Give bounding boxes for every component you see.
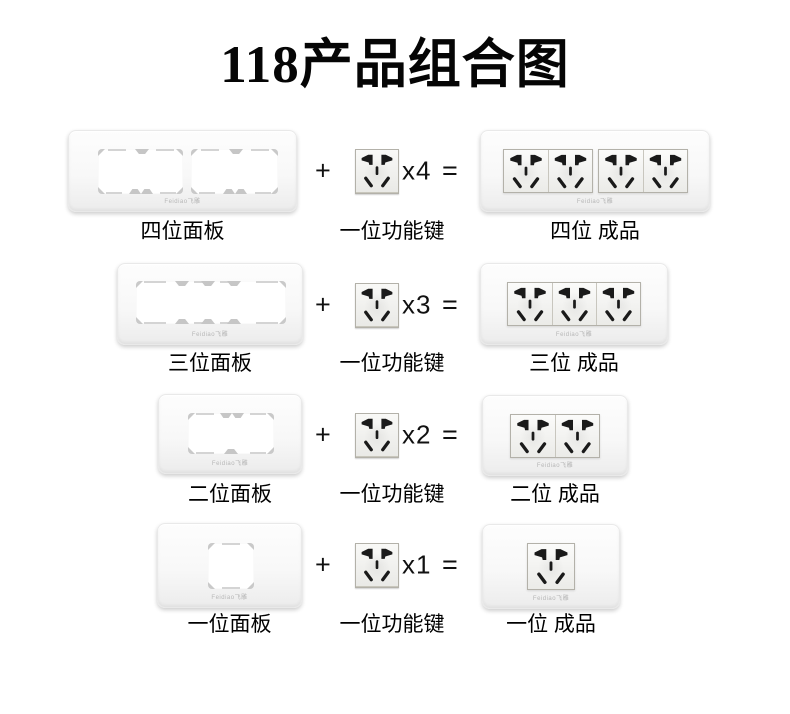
socket-five-hole-icon xyxy=(644,150,687,192)
cutout-mark xyxy=(199,192,215,194)
cutout-mark xyxy=(176,149,183,156)
cutout-mark xyxy=(208,582,215,589)
cutout-mark xyxy=(227,281,241,286)
multiplier-label: x1 xyxy=(402,549,431,580)
brand-mark: Feidiao飞雕 xyxy=(481,199,709,205)
cutout-mark xyxy=(222,587,240,589)
socket-five-hole-icon xyxy=(556,415,599,457)
multiplier-label: x2 xyxy=(402,419,431,450)
multiplier-label: x3 xyxy=(402,289,431,320)
cutout-mark xyxy=(227,319,241,324)
socket-face xyxy=(528,544,574,589)
socket-face xyxy=(511,415,555,457)
one-gang-socket-module-image xyxy=(355,413,399,458)
combiner-row: + x1 = xyxy=(305,543,473,588)
module-cutout xyxy=(188,413,274,454)
frame-panel-caption: 三位面板 xyxy=(117,351,303,377)
cutout-mark xyxy=(223,189,235,194)
module-caption: 一位功能键 xyxy=(302,482,482,508)
socket-group xyxy=(527,543,575,590)
cutout-mark xyxy=(220,413,232,418)
cutout-mark xyxy=(256,281,278,283)
page-title: 118产品组合图 xyxy=(0,22,790,98)
module-cutout xyxy=(208,543,254,589)
product-caption: 三位 成品 xyxy=(480,351,668,377)
four-gang-finished-product-image: Feidiao飞雕 xyxy=(480,130,710,212)
equals-operator: = xyxy=(442,289,458,320)
two-gang-finished-product-image: Feidiao飞雕 xyxy=(482,395,628,476)
cutout-mark xyxy=(98,149,105,156)
socket-group xyxy=(503,149,593,193)
three-gang-finished-product-image: Feidiao飞雕 xyxy=(480,263,668,345)
cutout-mark xyxy=(255,192,271,194)
cutout-mark xyxy=(144,322,166,324)
combiner-row: + x3 = xyxy=(305,283,473,328)
module-caption: 一位功能键 xyxy=(302,612,482,638)
product-caption: 二位 成品 xyxy=(482,482,628,508)
socket-five-hole-icon xyxy=(356,544,398,587)
frame-panel-caption: 二位面板 xyxy=(158,482,302,508)
cutout-mark xyxy=(250,413,266,415)
socket-five-hole-icon xyxy=(511,415,555,457)
socket-five-hole-icon xyxy=(356,414,398,457)
cutout-mark xyxy=(136,317,143,324)
cutout-mark xyxy=(271,187,278,194)
cutout-mark xyxy=(108,149,126,151)
cutout-mark xyxy=(188,447,195,454)
brand-mark: Feidiao飞雕 xyxy=(159,461,301,467)
cutout-mark xyxy=(247,582,254,589)
cutout-mark xyxy=(141,189,153,194)
socket-face xyxy=(504,150,548,192)
multiplier-label: x4 xyxy=(402,155,431,186)
cutout-mark xyxy=(208,543,215,550)
plus-operator: + xyxy=(315,549,331,580)
cutout-mark xyxy=(188,413,195,420)
frame-panel-caption: 四位面板 xyxy=(68,219,297,245)
cutout-mark xyxy=(135,149,149,154)
cutout-mark xyxy=(191,149,198,156)
cutout-mark xyxy=(196,452,214,454)
cutout-mark xyxy=(175,319,189,324)
socket-five-hole-icon xyxy=(553,283,596,325)
one-gang-finished-product-image: Feidiao飞雕 xyxy=(482,524,620,609)
equals-operator: = xyxy=(442,549,458,580)
cutout-mark xyxy=(196,413,214,415)
cutout-mark xyxy=(267,447,274,454)
one-gang-socket-module-image xyxy=(355,543,399,588)
cutout-mark xyxy=(160,192,176,194)
cutout-mark xyxy=(251,149,269,151)
cutout-mark xyxy=(201,281,215,286)
cutout-mark xyxy=(250,452,266,454)
product-caption: 一位 成品 xyxy=(482,612,620,638)
cutout-mark xyxy=(224,449,238,454)
cutout-mark xyxy=(175,281,189,286)
cutout-mark xyxy=(267,413,274,420)
module-caption: 一位功能键 xyxy=(302,351,482,377)
socket-face xyxy=(552,283,596,325)
socket-face xyxy=(643,150,687,192)
module-cutout xyxy=(98,149,183,194)
frame-panel-caption: 一位面板 xyxy=(157,612,302,638)
one-gang-socket-module-image xyxy=(355,149,399,194)
plus-operator: + xyxy=(315,289,331,320)
combiner-row: + x2 = xyxy=(305,413,473,458)
module-cutout xyxy=(136,281,286,324)
socket-five-hole-icon xyxy=(597,283,640,325)
cutout-mark xyxy=(232,413,244,418)
cutout-mark xyxy=(247,543,254,550)
brand-mark: Feidiao飞雕 xyxy=(118,332,302,338)
socket-five-hole-icon xyxy=(504,150,548,192)
socket-face xyxy=(548,150,592,192)
cutout-mark xyxy=(156,149,174,151)
socket-five-hole-icon xyxy=(528,544,574,589)
socket-group xyxy=(507,282,641,326)
socket-group xyxy=(598,149,688,193)
equals-operator: = xyxy=(442,155,458,186)
cutout-mark xyxy=(136,281,143,288)
socket-face xyxy=(508,283,552,325)
cutout-mark xyxy=(222,543,240,545)
cutout-mark xyxy=(106,192,122,194)
product-caption: 四位 成品 xyxy=(480,219,710,245)
three-gang-frame-panel-image: Feidiao飞雕 xyxy=(117,263,303,345)
cutout-mark xyxy=(229,149,243,154)
cutout-mark xyxy=(129,189,141,194)
cutout-mark xyxy=(256,322,278,324)
cutout-mark xyxy=(279,317,286,324)
brand-mark: Feidiao飞雕 xyxy=(158,595,301,601)
cutout-mark xyxy=(279,281,286,288)
socket-face xyxy=(599,150,643,192)
brand-mark: Feidiao飞雕 xyxy=(483,596,619,602)
brand-mark: Feidiao飞雕 xyxy=(69,199,296,205)
combo-diagram: 118产品组合图 Feidiao飞雕 + x4 xyxy=(0,0,790,714)
combiner-row: + x4 = xyxy=(305,149,473,194)
cutout-mark xyxy=(201,319,215,324)
cutout-mark xyxy=(235,189,247,194)
socket-five-hole-icon xyxy=(599,150,643,192)
module-caption: 一位功能键 xyxy=(302,219,482,245)
socket-five-hole-icon xyxy=(549,150,592,192)
plus-operator: + xyxy=(315,419,331,450)
four-gang-frame-panel-image: Feidiao飞雕 xyxy=(68,130,297,212)
cutout-mark xyxy=(144,281,166,283)
equals-operator: = xyxy=(442,419,458,450)
cutout-mark xyxy=(271,149,278,156)
socket-five-hole-icon xyxy=(356,150,398,193)
cutout-mark xyxy=(98,187,105,194)
socket-group xyxy=(510,414,600,458)
one-gang-frame-panel-image: Feidiao飞雕 xyxy=(157,523,302,608)
socket-face xyxy=(596,283,640,325)
brand-mark: Feidiao飞雕 xyxy=(481,332,667,338)
cutout-mark xyxy=(201,149,219,151)
one-gang-socket-module-image xyxy=(355,283,399,328)
two-gang-frame-panel-image: Feidiao飞雕 xyxy=(158,394,302,474)
brand-mark: Feidiao飞雕 xyxy=(483,463,627,469)
socket-five-hole-icon xyxy=(508,283,552,325)
plus-operator: + xyxy=(315,155,331,186)
socket-face xyxy=(555,415,599,457)
module-cutout xyxy=(191,149,278,194)
cutout-mark xyxy=(176,187,183,194)
socket-five-hole-icon xyxy=(356,284,398,327)
cutout-mark xyxy=(191,187,198,194)
